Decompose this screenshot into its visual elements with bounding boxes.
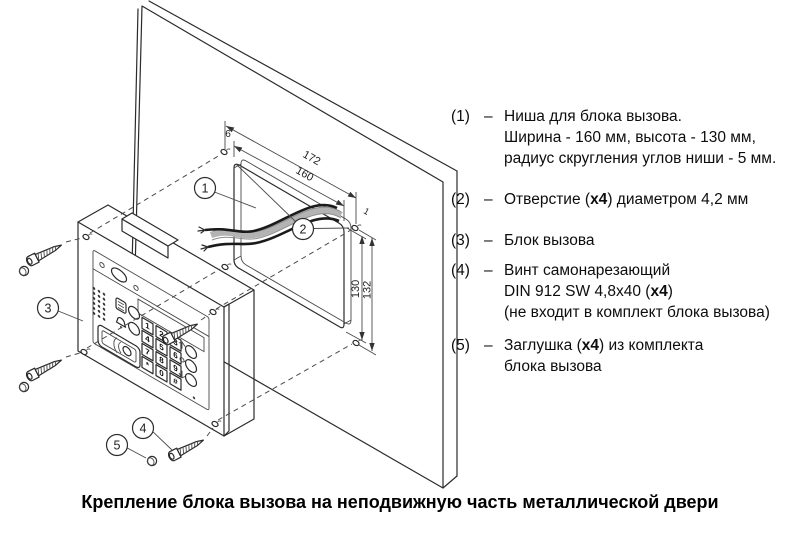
legend-item-number: (2) <box>451 189 484 210</box>
legend-item-text: Ниша для блока вызова.Ширина - 160 мм, в… <box>504 106 799 169</box>
legend-item-text: Блок вызова <box>504 230 799 251</box>
legend-item-dash: – <box>484 189 504 210</box>
callout-5: 5 <box>114 438 121 452</box>
figure: 172 160 6 1 130 132 <box>0 0 800 544</box>
callout-1: 1 <box>202 181 209 195</box>
legend-item-dash: – <box>484 230 504 251</box>
plug-top-left <box>18 265 30 277</box>
screw-top-left <box>25 241 64 267</box>
dim-height-inner: 130 <box>350 280 362 298</box>
legend-item-dash: – <box>484 335 504 377</box>
legend-item: (4)–Винт самонарезающийDIN 912 SW 4,8x40… <box>451 260 799 323</box>
legend-item-dash: – <box>484 260 504 323</box>
legend-item-dash: – <box>484 106 504 169</box>
legend-item: (1)–Ниша для блока вызова.Ширина - 160 м… <box>451 106 799 169</box>
legend-item: (2)–Отверстие (x4) диаметром 4,2 мм <box>451 189 799 210</box>
legend-item-text: Отверстие (x4) диаметром 4,2 мм <box>504 189 799 210</box>
plug-bottom <box>146 455 158 467</box>
dim-offset-left: 6 <box>225 129 231 140</box>
legend-item: (5)–Заглушка (x4) из комплектаблока вызо… <box>451 335 799 377</box>
screw-bottom <box>167 436 206 462</box>
legend-item-number: (3) <box>451 230 484 251</box>
callout-2: 2 <box>300 222 307 236</box>
dim-height-outer: 132 <box>362 281 374 299</box>
legend: (1)–Ниша для блока вызова.Ширина - 160 м… <box>451 106 799 397</box>
callout-4: 4 <box>140 421 147 435</box>
legend-item: (3)–Блок вызова <box>451 230 799 251</box>
legend-item-number: (5) <box>451 335 484 377</box>
legend-item-text: Заглушка (x4) из комплектаблока вызова <box>504 335 799 377</box>
figure-caption: Крепление блока вызова на неподвижную ча… <box>0 492 800 513</box>
legend-item-number: (4) <box>451 260 484 323</box>
legend-item-number: (1) <box>451 106 484 169</box>
legend-item-text: Винт самонарезающийDIN 912 SW 4,8x40 (x4… <box>504 260 799 323</box>
callout-3: 3 <box>45 301 52 315</box>
plug-bottom-left <box>18 381 30 393</box>
screw-bottom-left <box>25 356 64 382</box>
